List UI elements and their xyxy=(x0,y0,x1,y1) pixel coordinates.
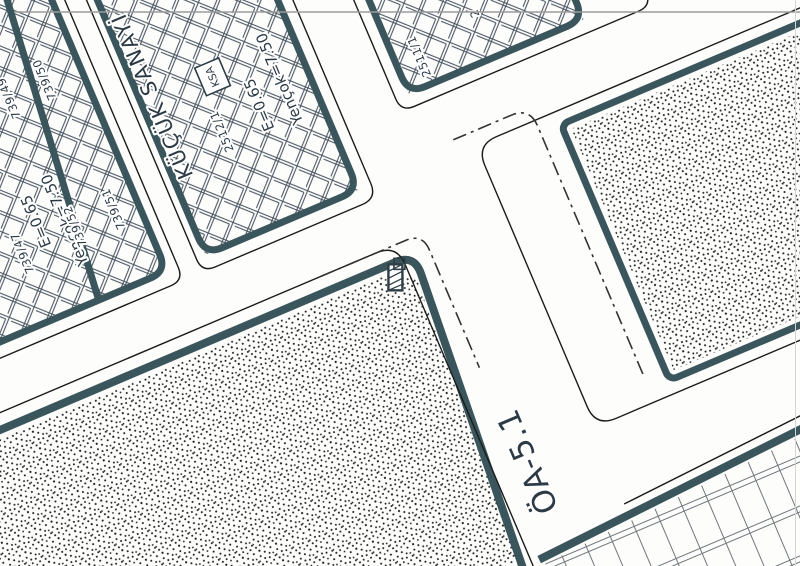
zoning-plan-scan: KSA KÜÇÜK SANAYİ E=0.65 Yençok=7.50 E=0.… xyxy=(0,0,800,566)
plan-map-canvas: KSA KÜÇÜK SANAYİ E=0.65 Yençok=7.50 E=0.… xyxy=(0,0,800,566)
